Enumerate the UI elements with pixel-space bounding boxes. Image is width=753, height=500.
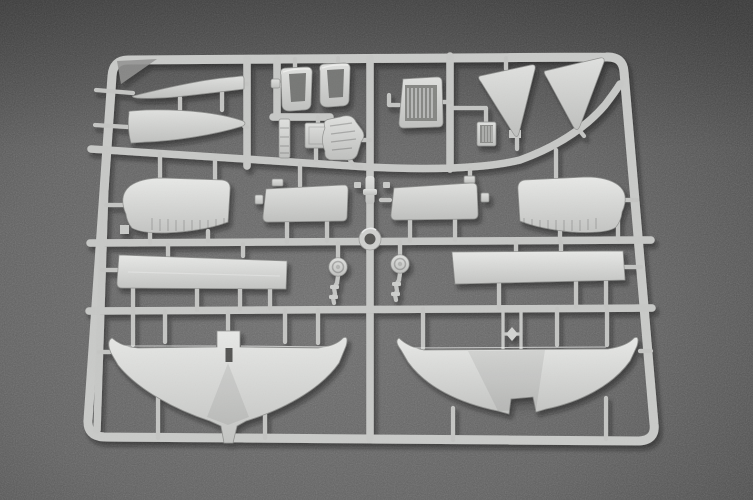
film-grain [0,0,753,500]
photo-stage: A light gray plastic model-kit sprue hol… [0,0,753,500]
sprue-photo [0,0,753,500]
